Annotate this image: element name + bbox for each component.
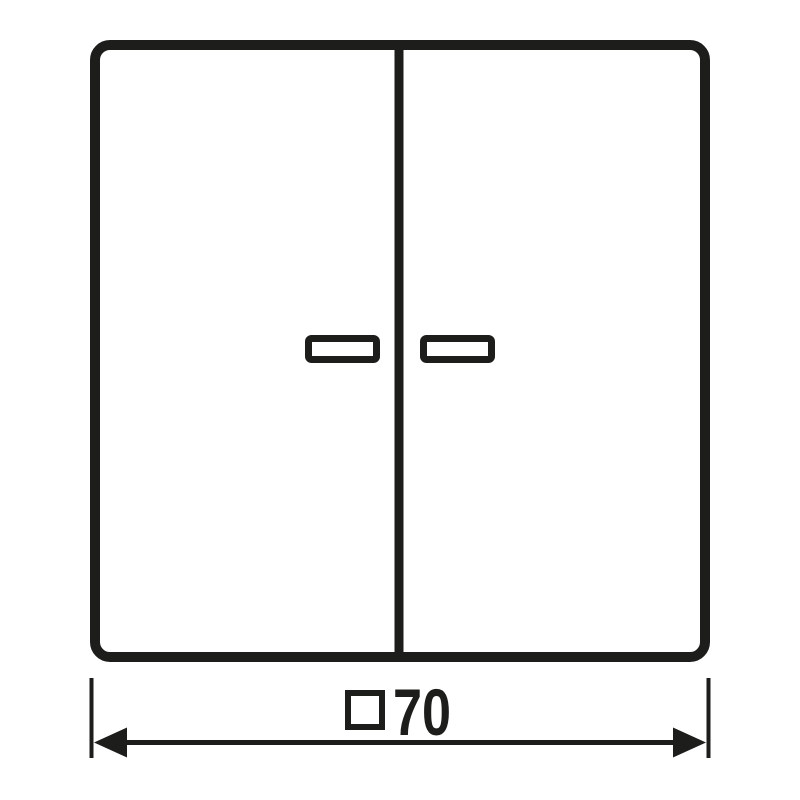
dimension-value-label: 70 — [393, 675, 451, 749]
switch-dimension-diagram: 70 — [0, 0, 800, 800]
drawing-canvas: 70 — [0, 0, 800, 800]
square-dimension-icon — [348, 693, 382, 727]
right-arrowhead-icon — [673, 728, 706, 758]
left-arrowhead-icon — [94, 728, 127, 758]
left-indicator-window — [309, 339, 377, 360]
dimension-annotation: 70 — [92, 675, 709, 758]
right-indicator-window — [424, 339, 492, 360]
